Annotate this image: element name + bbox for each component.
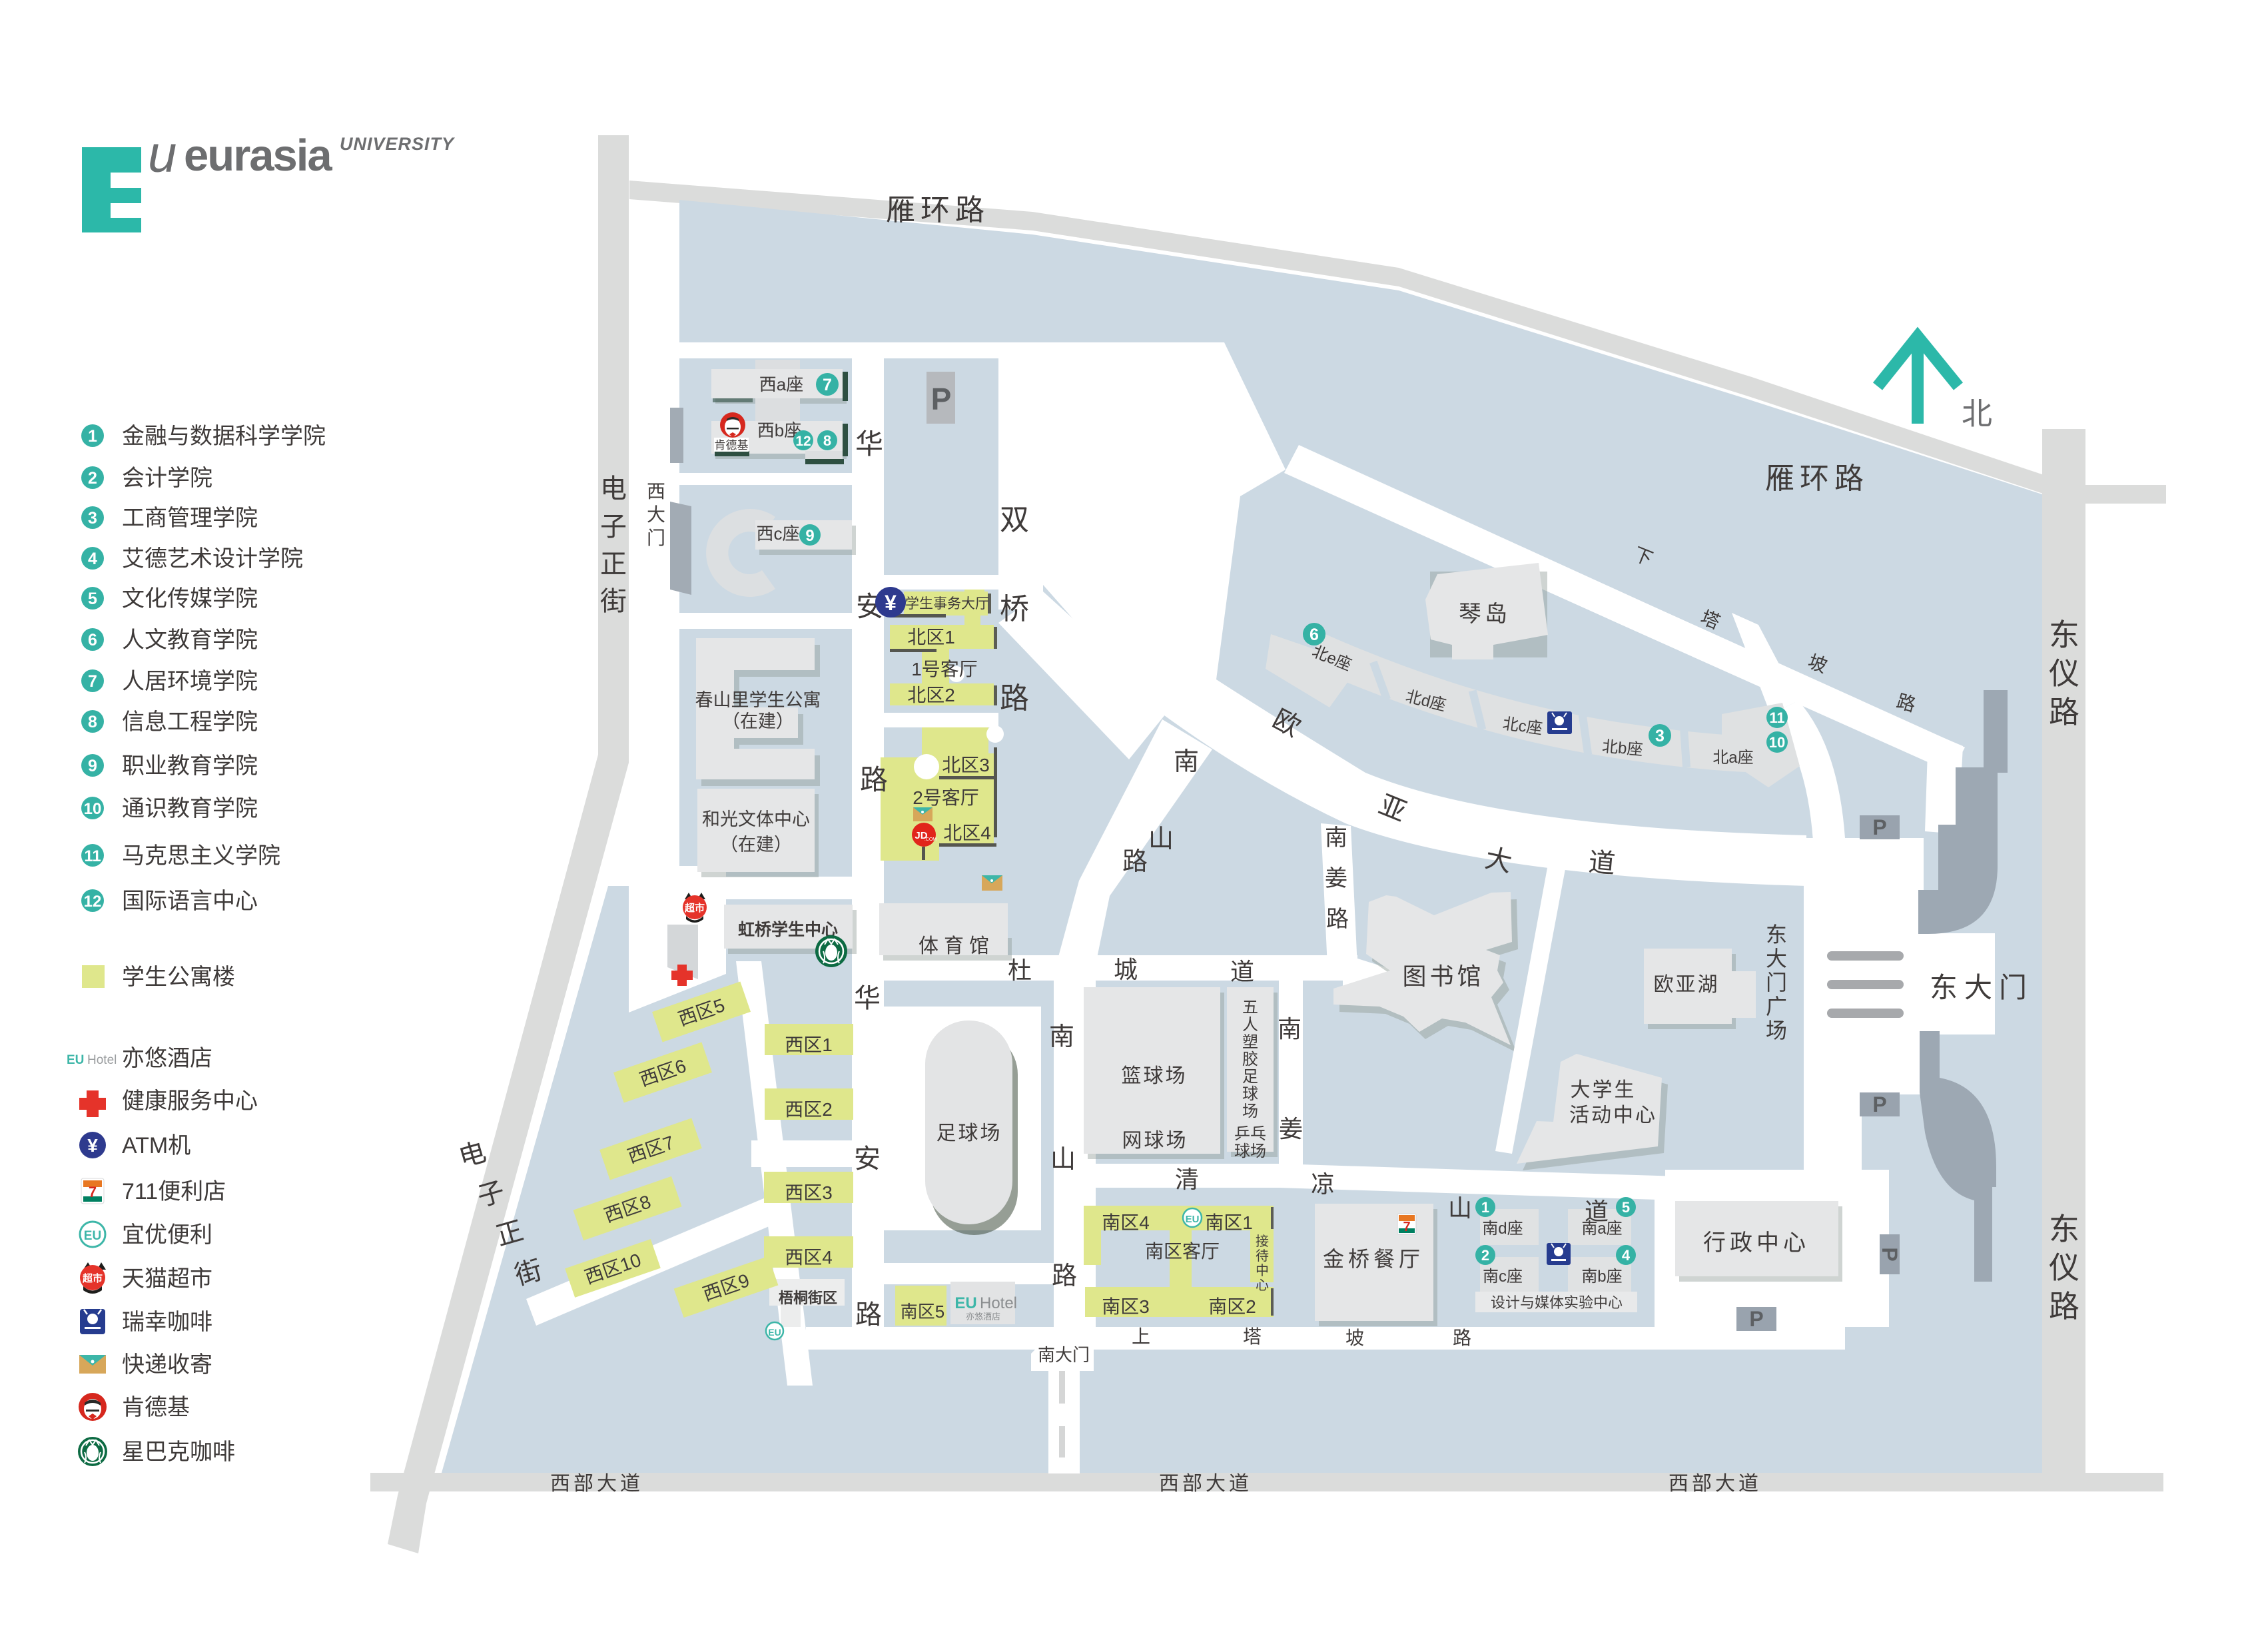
svg-text:通识教育学院: 通识教育学院 — [122, 796, 258, 821]
svg-text:行政中心: 行政中心 — [1703, 1230, 1810, 1256]
svg-text:山: 山 — [1148, 825, 1174, 853]
svg-text:虹桥学生中心: 虹桥学生中心 — [738, 920, 838, 939]
svg-text:宜优便利: 宜优便利 — [122, 1222, 212, 1248]
svg-text:西a座: 西a座 — [759, 374, 803, 394]
svg-text:超市: 超市 — [684, 902, 705, 914]
svg-text:上: 上 — [1132, 1326, 1150, 1347]
svg-text:雁环路: 雁环路 — [886, 194, 990, 226]
svg-text:设计与媒体实验中心: 设计与媒体实验中心 — [1491, 1294, 1623, 1311]
svg-text:东: 东 — [2049, 618, 2079, 652]
svg-text:待: 待 — [1256, 1248, 1269, 1264]
svg-text:P: P — [1878, 1247, 1902, 1261]
svg-text:学生公寓楼: 学生公寓楼 — [122, 965, 235, 990]
svg-text:子: 子 — [600, 512, 627, 542]
svg-text:道: 道 — [1230, 958, 1254, 985]
svg-text:9: 9 — [805, 527, 814, 545]
svg-text:ATM机: ATM机 — [122, 1133, 190, 1158]
svg-text:人文教育学院: 人文教育学院 — [122, 627, 258, 653]
svg-text:南区1: 南区1 — [1205, 1212, 1253, 1233]
svg-text:路: 路 — [1326, 907, 1349, 932]
svg-text:1号客厅: 1号客厅 — [911, 659, 978, 679]
svg-text:西区3: 西区3 — [785, 1182, 833, 1203]
svg-text:图书馆: 图书馆 — [1402, 963, 1484, 990]
svg-text:711便利店: 711便利店 — [122, 1179, 226, 1204]
svg-text:塔: 塔 — [1243, 1326, 1262, 1347]
svg-text:信息工程学院: 信息工程学院 — [122, 709, 258, 735]
svg-text:瑞幸咖啡: 瑞幸咖啡 — [122, 1310, 212, 1335]
svg-text:大: 大 — [1766, 947, 1787, 971]
svg-text:艾德艺术设计学院: 艾德艺术设计学院 — [122, 546, 303, 572]
svg-text:8: 8 — [88, 713, 97, 731]
svg-text:东: 东 — [1766, 923, 1787, 947]
svg-text:10: 10 — [84, 800, 102, 818]
svg-text:南区5: 南区5 — [901, 1302, 944, 1322]
svg-text:路: 路 — [860, 764, 888, 795]
svg-text:南区2: 南区2 — [1208, 1296, 1256, 1317]
svg-text:会计学院: 会计学院 — [122, 466, 212, 491]
svg-text:（在建）: （在建） — [720, 835, 792, 855]
svg-text:西区2: 西区2 — [785, 1099, 833, 1120]
svg-text:南d座: 南d座 — [1482, 1220, 1523, 1238]
svg-text:胶: 胶 — [1242, 1050, 1258, 1068]
svg-text:10: 10 — [1769, 734, 1785, 751]
svg-text:南: 南 — [1325, 825, 1347, 851]
svg-text:南大门: 南大门 — [1038, 1345, 1090, 1365]
svg-text:健康服务中心: 健康服务中心 — [122, 1088, 258, 1114]
svg-text:活动中心: 活动中心 — [1569, 1104, 1657, 1126]
svg-text:中: 中 — [1256, 1263, 1269, 1278]
svg-text:西区1: 西区1 — [785, 1034, 833, 1055]
svg-text:11: 11 — [84, 847, 101, 865]
svg-text:EU: EU — [1186, 1214, 1200, 1225]
svg-text:11: 11 — [1769, 709, 1784, 726]
svg-text:街: 街 — [600, 587, 627, 616]
svg-text:大学生: 大学生 — [1571, 1079, 1637, 1101]
svg-text:安: 安 — [854, 1144, 881, 1174]
svg-text:球: 球 — [1242, 1085, 1258, 1103]
svg-text:南: 南 — [1174, 748, 1199, 776]
svg-text:北: 北 — [1962, 396, 1992, 431]
svg-text:仪: 仪 — [2049, 656, 2079, 691]
svg-text:姜: 姜 — [1279, 1115, 1303, 1142]
svg-text:EU: EU — [67, 1053, 84, 1067]
svg-text:8: 8 — [823, 432, 831, 449]
svg-text:西c座: 西c座 — [756, 524, 799, 544]
svg-text:路: 路 — [2049, 695, 2079, 729]
svg-text:山: 山 — [1050, 1146, 1076, 1174]
svg-text:（在建）: （在建） — [722, 711, 794, 731]
svg-text:乒乓: 乒乓 — [1234, 1125, 1266, 1143]
svg-text:南b座: 南b座 — [1581, 1268, 1622, 1286]
svg-text:门: 门 — [1766, 971, 1787, 995]
svg-text:场: 场 — [1766, 1019, 1787, 1042]
svg-text:亦悠酒店: 亦悠酒店 — [966, 1312, 1000, 1322]
svg-text:西部大道: 西部大道 — [550, 1473, 643, 1495]
svg-text:球场: 球场 — [1234, 1142, 1266, 1160]
svg-text:城: 城 — [1114, 956, 1138, 983]
svg-text:EU: EU — [954, 1294, 976, 1312]
svg-text:篮球场: 篮球场 — [1122, 1065, 1188, 1087]
svg-text:道: 道 — [1587, 847, 1617, 879]
svg-text:快递收寄: 快递收寄 — [122, 1352, 212, 1378]
svg-text:¥: ¥ — [885, 591, 897, 615]
svg-text:体育馆: 体育馆 — [919, 935, 994, 957]
svg-text:大: 大 — [647, 504, 665, 525]
svg-text:双: 双 — [1000, 504, 1029, 536]
svg-text:EU: EU — [84, 1229, 101, 1243]
svg-text:6: 6 — [88, 631, 97, 649]
svg-text:5: 5 — [1622, 1199, 1630, 1216]
svg-text:杜: 杜 — [1008, 957, 1032, 984]
svg-text:路: 路 — [1000, 682, 1029, 715]
svg-text:7: 7 — [88, 672, 97, 691]
svg-text:北区4: 北区4 — [943, 823, 991, 843]
svg-text:7: 7 — [89, 1184, 97, 1200]
svg-text:路: 路 — [1453, 1328, 1471, 1348]
svg-text:肯德基: 肯德基 — [122, 1395, 190, 1420]
svg-text:西: 西 — [647, 481, 665, 502]
svg-text:P: P — [1749, 1307, 1763, 1331]
svg-text:3: 3 — [88, 509, 97, 528]
svg-text:星巴克咖啡: 星巴克咖啡 — [122, 1440, 235, 1465]
svg-text:P: P — [1872, 1092, 1886, 1116]
svg-text:6: 6 — [1309, 625, 1319, 644]
svg-text:12: 12 — [795, 434, 811, 449]
svg-text:华: 华 — [854, 984, 881, 1013]
svg-text:路: 路 — [855, 1300, 882, 1330]
svg-text:足: 足 — [1242, 1068, 1258, 1086]
svg-text:姜: 姜 — [1325, 866, 1347, 891]
svg-text:五: 五 — [1242, 999, 1258, 1017]
svg-text:南区4: 南区4 — [1102, 1212, 1150, 1233]
svg-text:天猫超市: 天猫超市 — [122, 1266, 212, 1292]
svg-text:P: P — [931, 382, 952, 416]
svg-text:电: 电 — [600, 474, 627, 504]
svg-text:桥: 桥 — [1000, 593, 1029, 625]
svg-text:心: 心 — [1256, 1278, 1269, 1293]
svg-text:肯德基: 肯德基 — [715, 439, 749, 452]
svg-text:4: 4 — [88, 550, 97, 568]
svg-text:工商管理学院: 工商管理学院 — [122, 506, 258, 531]
svg-text:9: 9 — [88, 757, 97, 775]
svg-text:2号客厅: 2号客厅 — [913, 787, 979, 808]
svg-text:7: 7 — [823, 376, 832, 394]
svg-text:南区3: 南区3 — [1102, 1296, 1150, 1317]
svg-text:南: 南 — [1049, 1023, 1074, 1051]
svg-text:EU: EU — [768, 1327, 781, 1338]
svg-text:门: 门 — [647, 528, 665, 548]
svg-text:西区4: 西区4 — [785, 1247, 833, 1268]
svg-text:Hotel: Hotel — [980, 1294, 1017, 1312]
svg-text:4: 4 — [1622, 1247, 1631, 1264]
svg-text:.COM: .COM — [925, 837, 936, 842]
svg-text:7: 7 — [1403, 1220, 1410, 1234]
svg-text:人: 人 — [1242, 1016, 1258, 1034]
svg-text:eurasia: eurasia — [184, 131, 332, 181]
svg-text:北b座: 北b座 — [1601, 737, 1643, 759]
svg-text:琴岛: 琴岛 — [1459, 602, 1511, 627]
svg-text:和光文体中心: 和光文体中心 — [702, 809, 810, 829]
svg-text:坡: 坡 — [1345, 1328, 1364, 1348]
svg-text:文化传媒学院: 文化传媒学院 — [122, 586, 258, 612]
svg-text:1: 1 — [1481, 1199, 1489, 1216]
svg-text:亦悠酒店: 亦悠酒店 — [122, 1046, 212, 1071]
svg-text:1: 1 — [88, 427, 97, 446]
svg-text:¥: ¥ — [87, 1135, 98, 1156]
svg-text:超市: 超市 — [82, 1272, 103, 1284]
svg-text:足球场: 足球场 — [936, 1122, 1002, 1144]
svg-text:职业教育学院: 职业教育学院 — [122, 753, 258, 779]
svg-text:学生事务大厅: 学生事务大厅 — [905, 596, 989, 612]
svg-text:南a座: 南a座 — [1581, 1220, 1622, 1238]
svg-text:2: 2 — [88, 469, 97, 488]
svg-text:雁环路: 雁环路 — [1765, 462, 1869, 495]
svg-text:路: 路 — [1122, 848, 1148, 876]
svg-text:路: 路 — [2049, 1289, 2079, 1324]
svg-text:南区客厅: 南区客厅 — [1145, 1241, 1220, 1262]
svg-text:北区2: 北区2 — [907, 685, 955, 705]
svg-text:5: 5 — [88, 590, 97, 608]
svg-text:国际语言中心: 国际语言中心 — [122, 889, 258, 914]
svg-text:梧桐街区: 梧桐街区 — [779, 1290, 837, 1306]
svg-text:3: 3 — [1655, 727, 1665, 745]
svg-text:西部大道: 西部大道 — [1159, 1473, 1252, 1495]
svg-text:春山里学生公寓: 春山里学生公寓 — [695, 690, 821, 710]
svg-text:欧亚湖: 欧亚湖 — [1654, 974, 1720, 996]
svg-text:人居环境学院: 人居环境学院 — [122, 669, 258, 694]
svg-text:u: u — [148, 125, 177, 183]
svg-text:南c座: 南c座 — [1483, 1268, 1523, 1286]
svg-text:场: 场 — [1242, 1102, 1258, 1120]
svg-text:P: P — [1872, 815, 1886, 839]
svg-text:西部大道: 西部大道 — [1669, 1473, 1762, 1495]
svg-text:凉: 凉 — [1311, 1170, 1335, 1198]
svg-text:2: 2 — [1481, 1247, 1489, 1264]
svg-text:马克思主义学院: 马克思主义学院 — [122, 843, 280, 869]
svg-text:正: 正 — [600, 550, 627, 579]
svg-text:山: 山 — [1448, 1194, 1472, 1222]
svg-text:东: 东 — [2049, 1212, 2079, 1246]
svg-text:12: 12 — [84, 893, 102, 911]
svg-text:接: 接 — [1256, 1234, 1269, 1249]
svg-text:北区1: 北区1 — [907, 627, 955, 647]
svg-text:塑: 塑 — [1242, 1033, 1258, 1051]
svg-text:Hotel: Hotel — [87, 1053, 117, 1067]
svg-text:北区3: 北区3 — [942, 755, 990, 775]
svg-text:网球场: 网球场 — [1122, 1130, 1188, 1152]
svg-text:金桥餐厅: 金桥餐厅 — [1323, 1247, 1424, 1271]
svg-text:北a座: 北a座 — [1712, 749, 1753, 767]
svg-text:广: 广 — [1766, 995, 1787, 1019]
svg-text:路: 路 — [1052, 1262, 1077, 1290]
svg-text:东大门: 东大门 — [1930, 972, 2034, 1003]
svg-text:UNIVERSITY: UNIVERSITY — [340, 134, 456, 154]
svg-text:华: 华 — [855, 428, 883, 460]
svg-text:金融与数据科学学院: 金融与数据科学学院 — [122, 424, 326, 449]
svg-text:南: 南 — [1278, 1015, 1302, 1042]
svg-text:仪: 仪 — [2049, 1250, 2079, 1285]
svg-text:清: 清 — [1175, 1166, 1199, 1193]
